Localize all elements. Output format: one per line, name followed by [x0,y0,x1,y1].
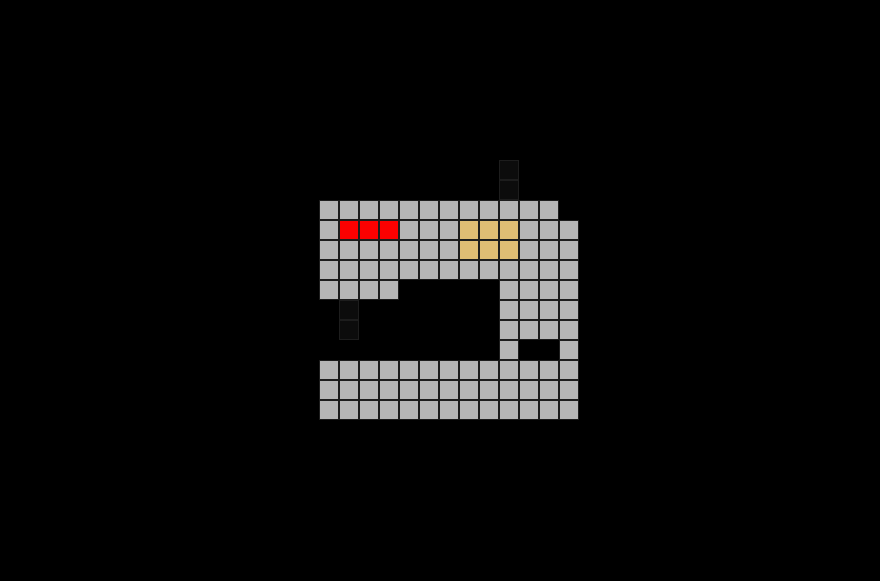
pixel-cell-machine-body-gray [419,400,439,420]
pixel-cell-machine-body-gray [559,340,579,360]
pixel-cell-button-red [379,220,399,240]
pixel-cell-machine-body-gray [499,200,519,220]
pixel-cell-machine-body-gray [499,300,519,320]
pixel-cell-machine-body-gray [519,380,539,400]
pixel-cell-machine-body-gray [479,260,499,280]
pixel-cell-dial-tan [459,220,479,240]
pixel-cell-machine-body-gray [519,240,539,260]
pixel-cell-machine-body-gray [359,240,379,260]
pixel-cell-machine-body-gray [559,300,579,320]
pixel-cell-machine-body-gray [459,200,479,220]
pixel-cell-machine-body-gray [559,220,579,240]
pixel-cell-machine-body-gray [559,260,579,280]
pixel-cell-machine-body-gray [519,360,539,380]
pixel-cell-machine-body-gray [559,280,579,300]
pixel-cell-machine-body-gray [439,380,459,400]
pixel-cell-machine-body-gray [319,400,339,420]
pixel-cell-machine-body-gray [499,400,519,420]
pixel-cell-machine-body-gray [379,260,399,280]
pixel-cell-machine-body-gray [339,360,359,380]
pixel-cell-dial-tan [499,220,519,240]
pixel-cell-machine-body-gray [439,400,459,420]
pixel-cell-machine-body-gray [399,200,419,220]
pixel-cell-machine-body-gray [519,280,539,300]
pixel-cell-machine-body-gray [559,380,579,400]
pixel-cell-machine-body-gray [399,220,419,240]
pixel-cell-needle-dark [339,320,359,340]
sewing-machine-pixel-art [319,160,579,420]
pixel-cell-machine-body-gray [339,260,359,280]
pixel-cell-machine-body-gray [359,400,379,420]
pixel-cell-machine-body-gray [439,260,459,280]
pixel-cell-dial-tan [479,240,499,260]
pixel-cell-machine-body-gray [519,200,539,220]
pixel-cell-machine-body-gray [539,220,559,240]
pixel-cell-machine-body-gray [319,240,339,260]
pixel-cell-machine-body-gray [339,240,359,260]
pixel-cell-machine-body-gray [559,360,579,380]
pixel-cell-machine-body-gray [379,280,399,300]
pixel-cell-machine-body-gray [399,360,419,380]
pixel-cell-machine-body-gray [499,380,519,400]
pixel-cell-machine-body-gray [539,380,559,400]
pixel-cell-machine-body-gray [559,240,579,260]
pixel-cell-machine-body-gray [479,380,499,400]
pixel-cell-machine-body-gray [499,280,519,300]
pixel-cell-button-red [339,220,359,240]
pixel-cell-machine-body-gray [519,400,539,420]
pixel-cell-machine-body-gray [459,400,479,420]
pixel-cell-machine-body-gray [519,300,539,320]
pixel-cell-machine-body-gray [379,400,399,420]
pixel-cell-machine-body-gray [319,280,339,300]
pixel-cell-machine-body-gray [519,220,539,240]
pixel-cell-machine-body-gray [359,360,379,380]
pixel-cell-machine-body-gray [559,320,579,340]
pixel-cell-button-red [359,220,379,240]
pixel-cell-machine-body-gray [419,200,439,220]
pixel-cell-machine-body-gray [339,200,359,220]
pixel-cell-machine-body-gray [319,360,339,380]
pixel-cell-machine-body-gray [459,260,479,280]
pixel-cell-machine-body-gray [379,380,399,400]
pixel-cell-machine-body-gray [339,400,359,420]
pixel-cell-machine-body-gray [539,300,559,320]
pixel-cell-machine-body-gray [539,240,559,260]
pixel-cell-machine-body-gray [359,280,379,300]
pixel-cell-machine-body-gray [319,200,339,220]
pixel-cell-machine-body-gray [379,200,399,220]
pixel-cell-machine-body-gray [559,400,579,420]
pixel-cell-machine-body-gray [519,260,539,280]
pixel-cell-machine-body-gray [399,380,419,400]
pixel-cell-machine-body-gray [419,360,439,380]
pixel-cell-dial-tan [499,240,519,260]
pixel-cell-machine-body-gray [539,280,559,300]
pixel-cell-machine-body-gray [439,360,459,380]
pixel-cell-machine-body-gray [499,340,519,360]
pixel-cell-machine-body-gray [439,200,459,220]
pixel-cell-machine-body-gray [359,200,379,220]
pixel-cell-machine-body-gray [479,200,499,220]
pixel-cell-machine-body-gray [499,260,519,280]
pixel-cell-machine-body-gray [319,220,339,240]
pixel-cell-machine-body-gray [419,240,439,260]
pixel-cell-machine-body-gray [399,260,419,280]
pixel-cell-dial-tan [459,240,479,260]
pixel-cell-machine-body-gray [479,360,499,380]
pixel-cell-machine-body-gray [419,220,439,240]
canvas-background [0,0,880,581]
pixel-cell-machine-body-gray [399,400,419,420]
pixel-cell-machine-body-gray [439,220,459,240]
pixel-cell-machine-body-gray [399,240,419,260]
pixel-cell-machine-body-gray [419,260,439,280]
pixel-cell-machine-body-gray [499,320,519,340]
pixel-cell-machine-body-gray [459,360,479,380]
pixel-cell-machine-body-gray [539,200,559,220]
pixel-cell-machine-body-gray [419,380,439,400]
pixel-cell-machine-body-gray [379,240,399,260]
pixel-cell-machine-body-gray [319,380,339,400]
pixel-cell-machine-body-gray [539,400,559,420]
pixel-cell-needle-dark [499,160,519,180]
pixel-cell-machine-body-gray [339,380,359,400]
pixel-cell-machine-body-gray [539,360,559,380]
pixel-cell-dial-tan [479,220,499,240]
pixel-cell-machine-body-gray [359,260,379,280]
pixel-cell-machine-body-gray [359,380,379,400]
pixel-cell-machine-body-gray [539,320,559,340]
pixel-cell-machine-body-gray [539,260,559,280]
pixel-cell-machine-body-gray [339,280,359,300]
pixel-cell-machine-body-gray [499,360,519,380]
pixel-cell-needle-dark [339,300,359,320]
pixel-cell-machine-body-gray [439,240,459,260]
pixel-cell-machine-body-gray [479,400,499,420]
pixel-cell-machine-body-gray [519,320,539,340]
pixel-cell-needle-dark [499,180,519,200]
pixel-cell-machine-body-gray [459,380,479,400]
pixel-cell-machine-body-gray [319,260,339,280]
pixel-cell-machine-body-gray [379,360,399,380]
